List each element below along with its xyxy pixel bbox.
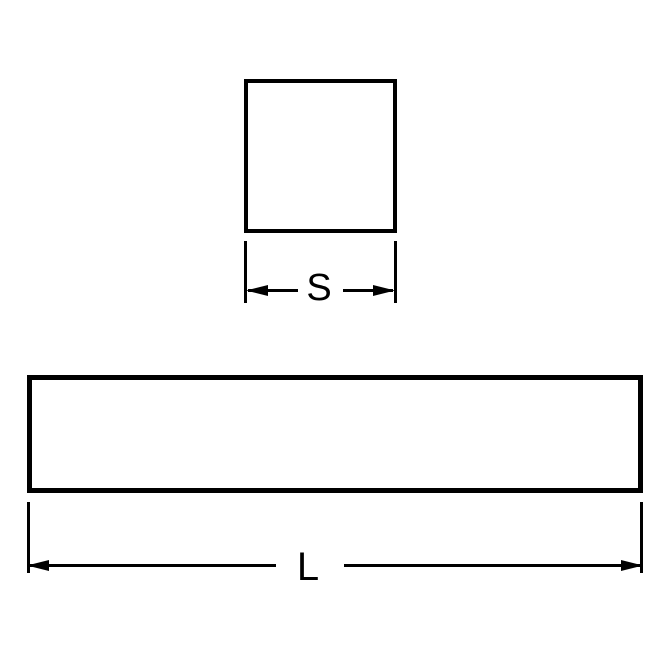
l-arrowhead-left-icon (27, 560, 49, 571)
s-arrowhead-right-icon (373, 285, 395, 296)
page: { "diagram": { "background_color": "#fff… (0, 0, 670, 670)
l-arrowhead-right-icon (621, 560, 643, 571)
cross-section-view: S (246, 81, 396, 309)
diagram-canvas: S L (0, 0, 670, 670)
s-arrowhead-left-icon (246, 285, 268, 296)
keystock-dimension-diagram: S L (0, 0, 670, 670)
s-dimension-label: S (306, 267, 331, 309)
length-view: L (27, 378, 643, 590)
square-outline (246, 81, 395, 231)
l-dimension-label: L (297, 545, 319, 589)
bar-outline (30, 378, 641, 491)
